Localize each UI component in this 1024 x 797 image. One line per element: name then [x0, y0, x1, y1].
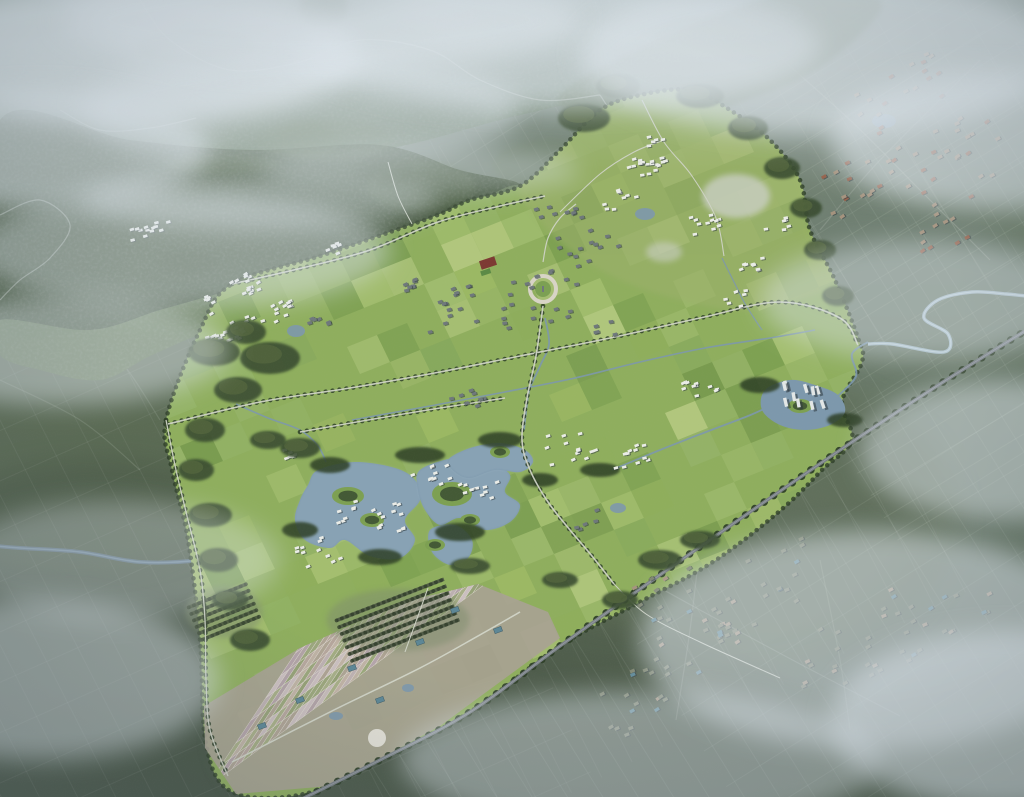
scene-canvas	[0, 0, 1024, 797]
aerial-masterplan-rendering	[0, 0, 1024, 797]
mist-overlay	[0, 0, 1024, 797]
